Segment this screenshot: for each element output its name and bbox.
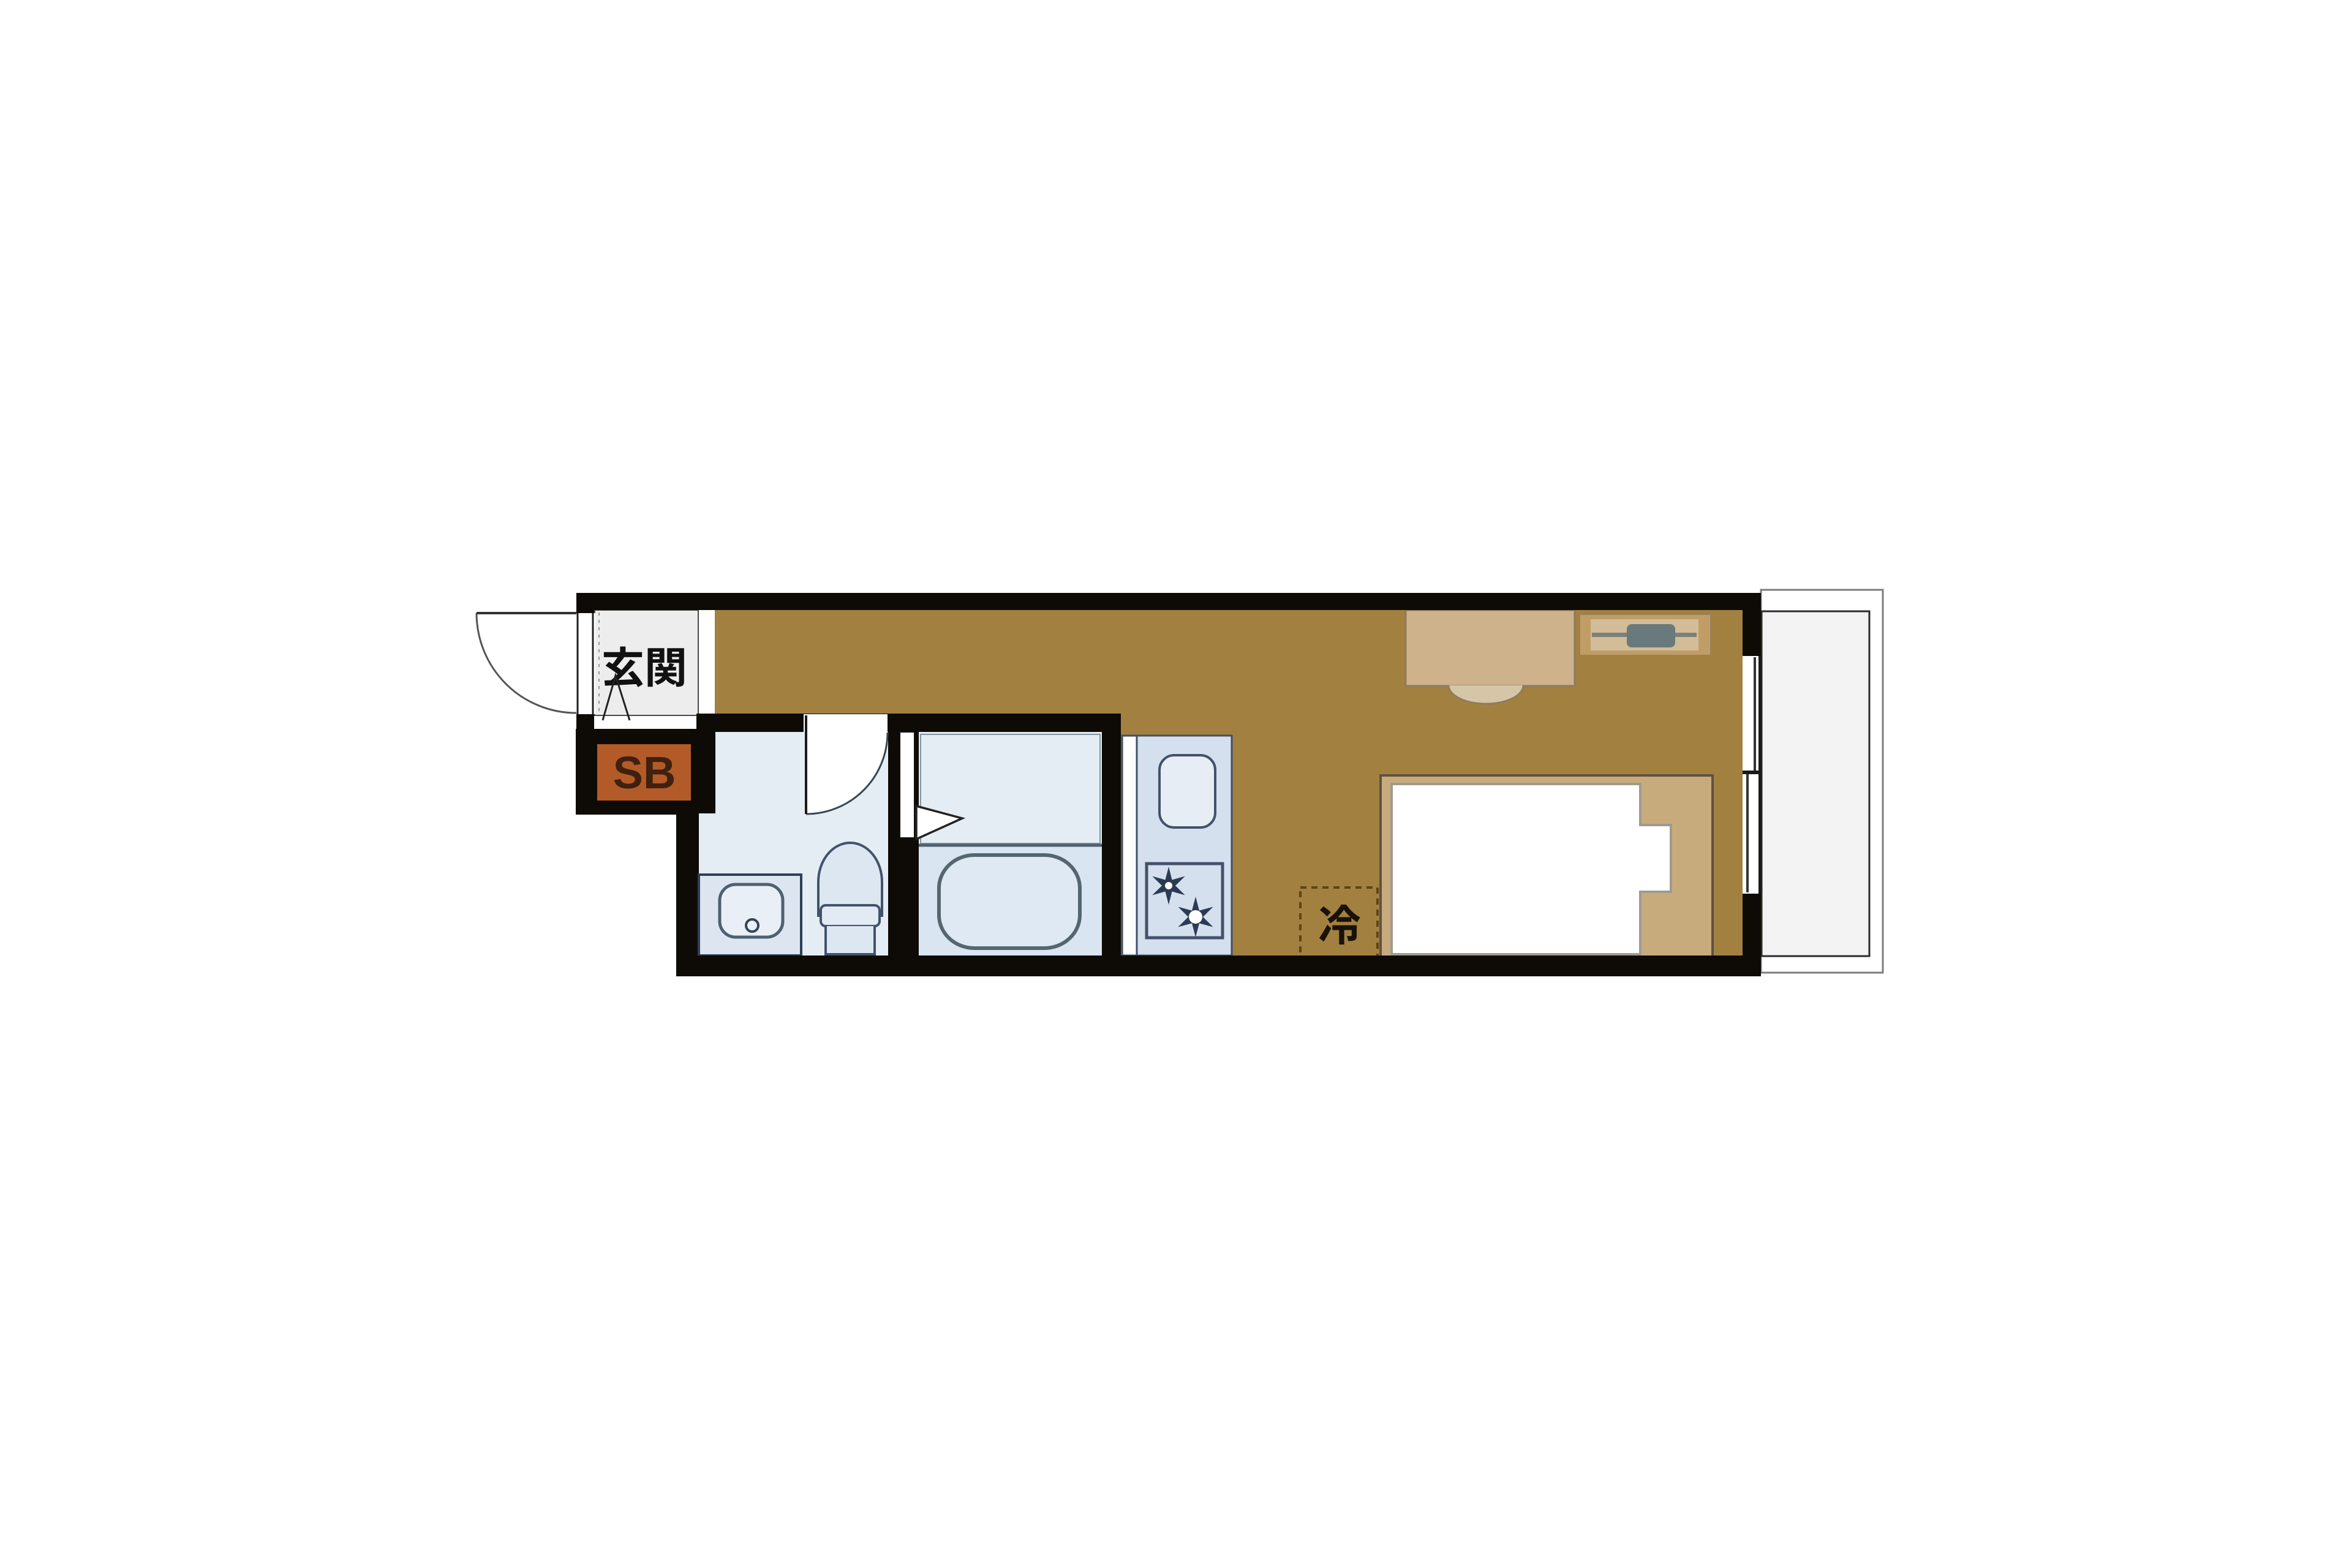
svg-text:SB: SB <box>613 747 676 798</box>
